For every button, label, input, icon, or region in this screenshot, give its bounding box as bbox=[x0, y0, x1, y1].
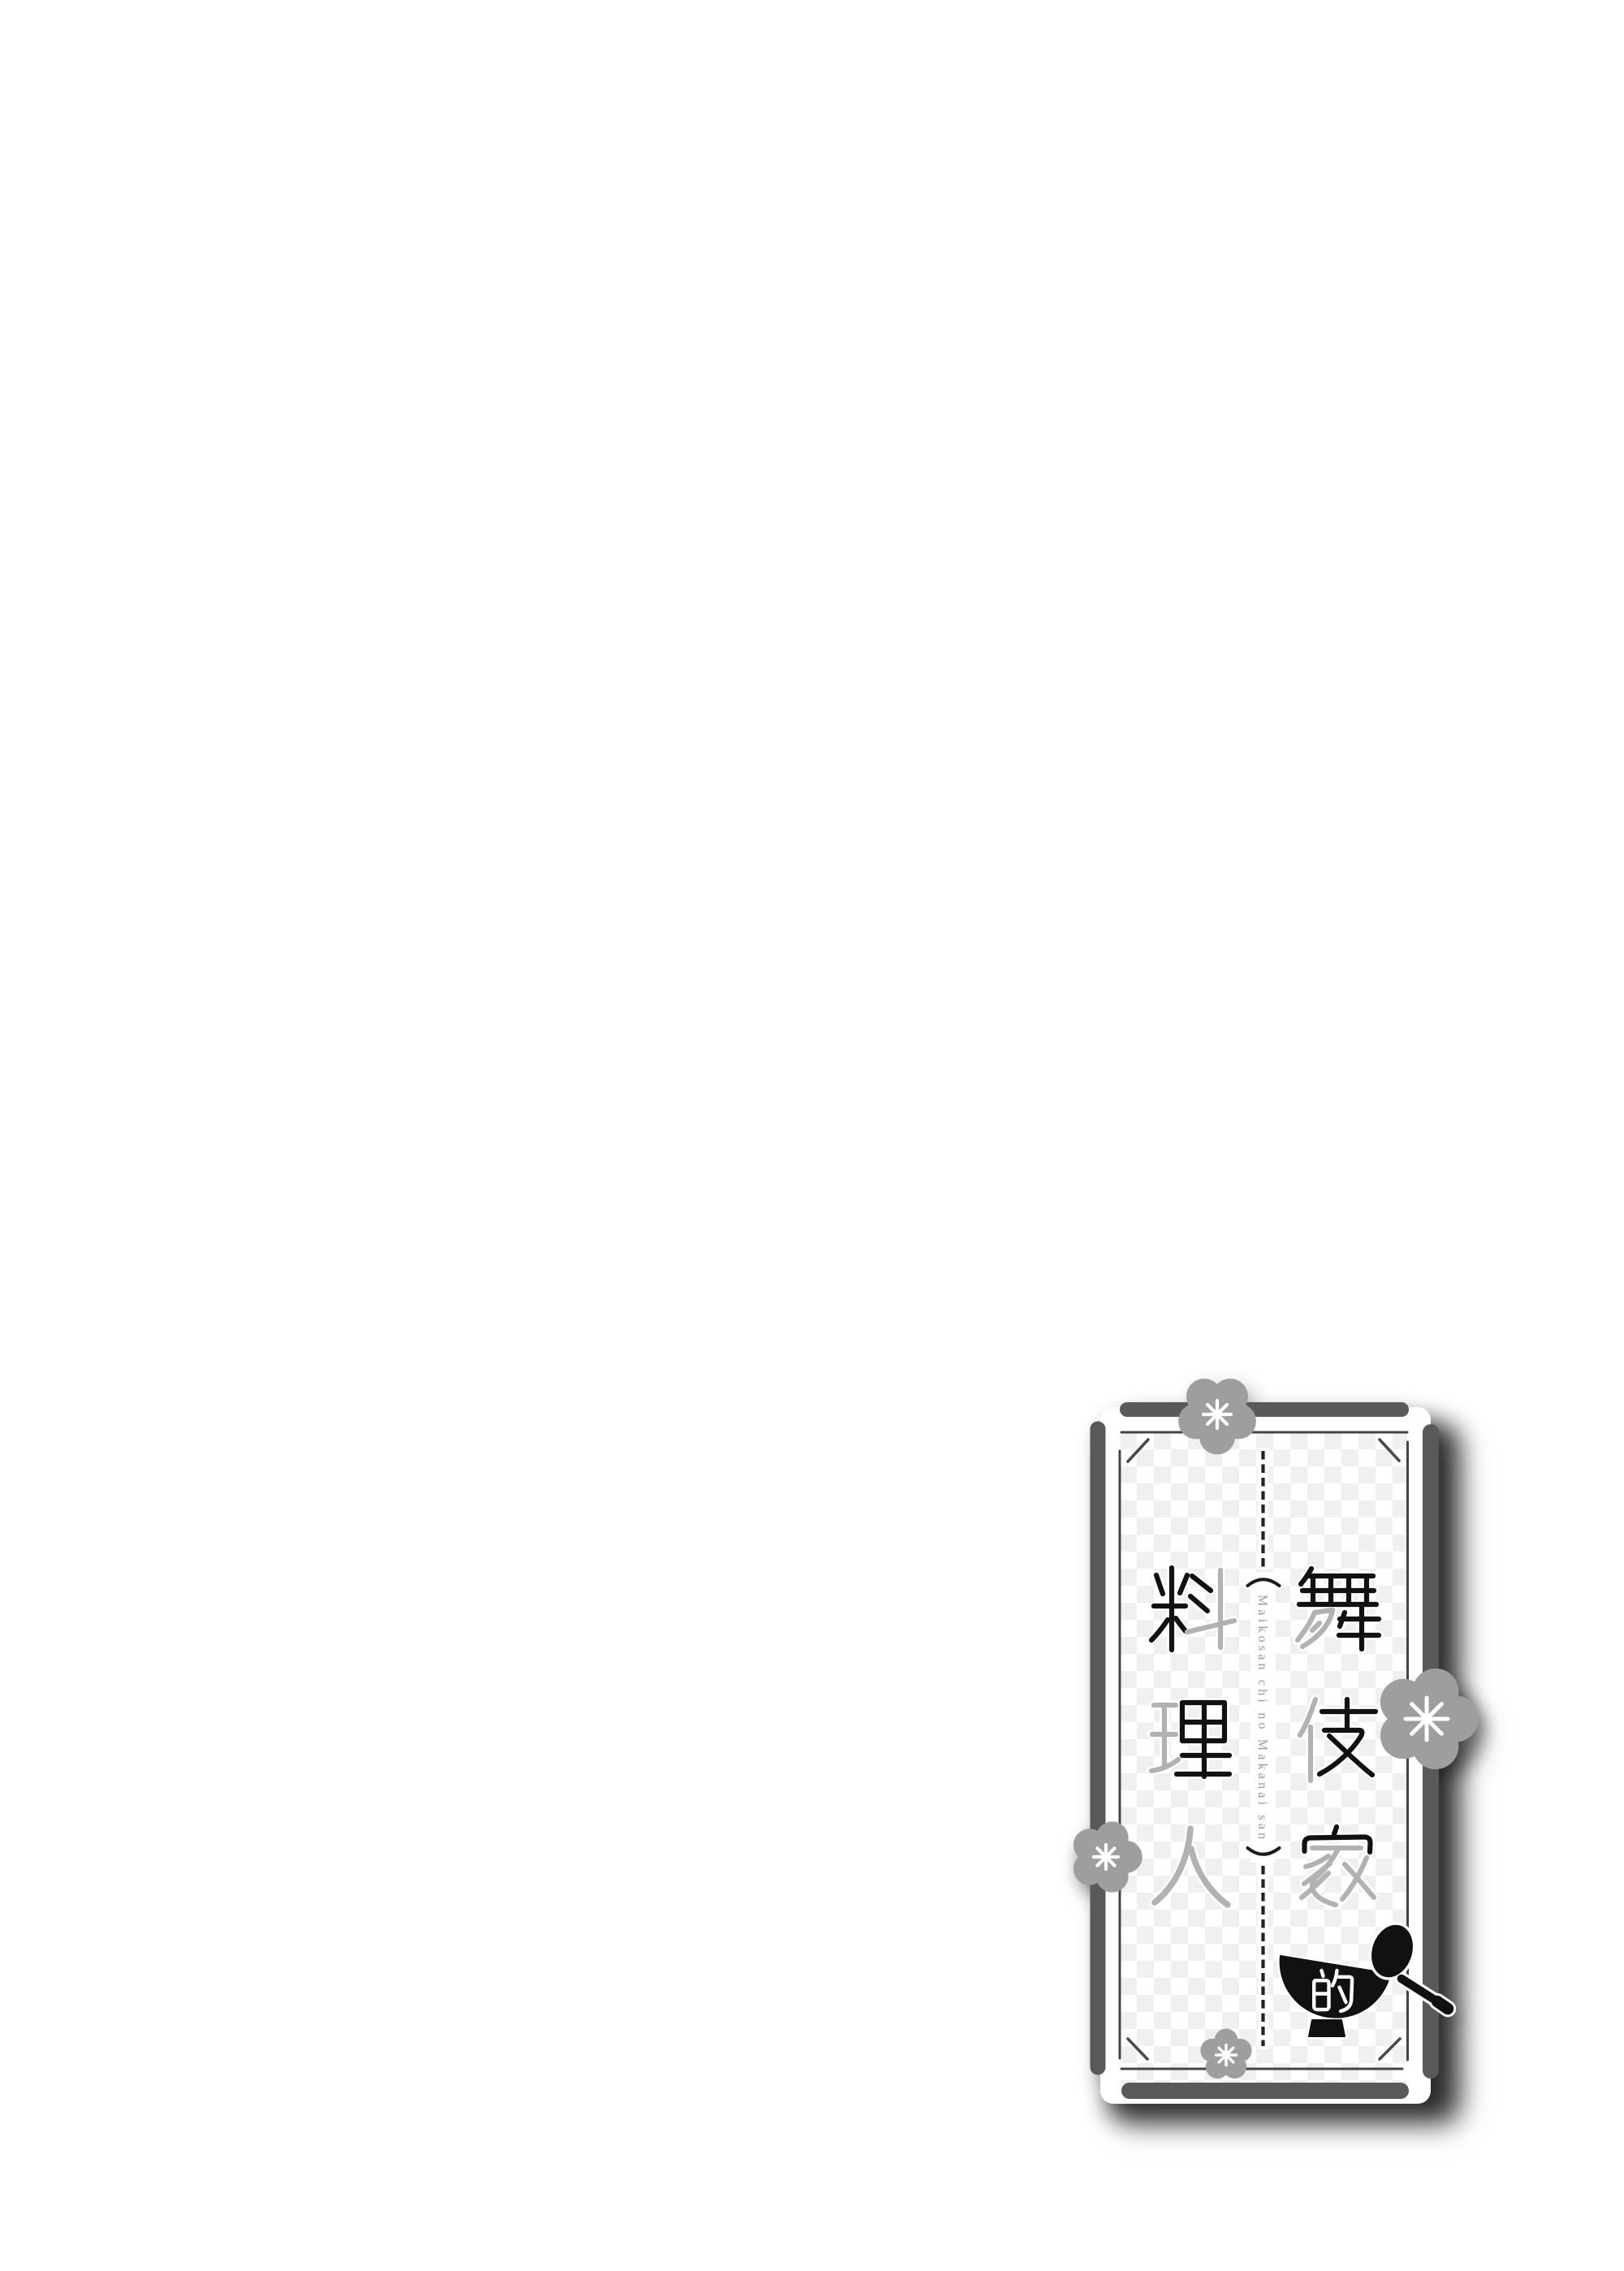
svg-text:Maikosan chi no Makanai san: Maikosan chi no Makanai san bbox=[1255, 1595, 1269, 1842]
